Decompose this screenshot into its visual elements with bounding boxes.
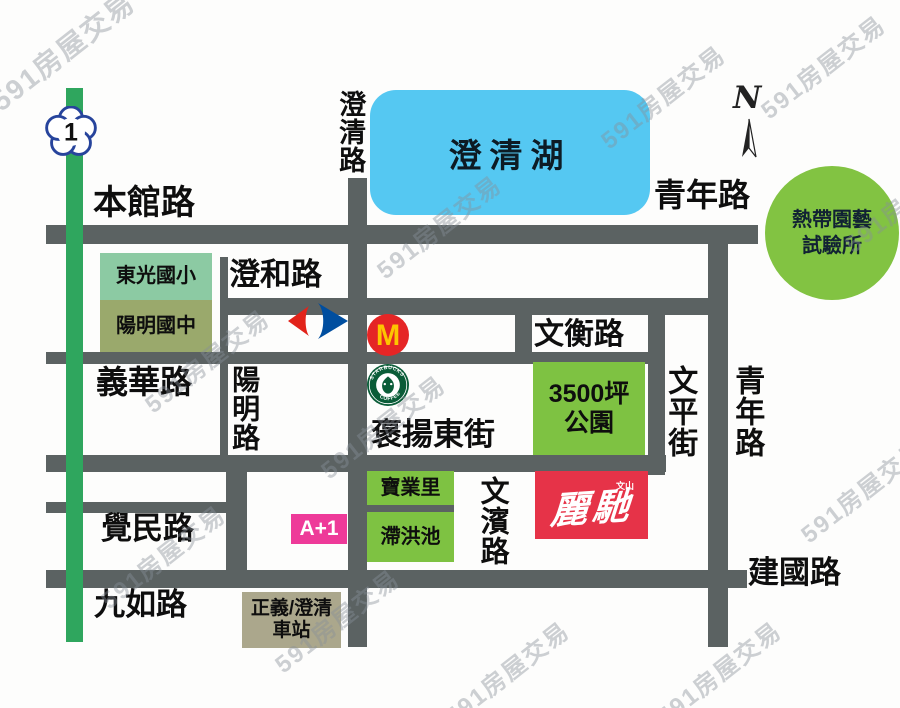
compass-north-icon: [741, 116, 757, 166]
mcdonalds-m: M: [376, 320, 400, 352]
a-plus-1-box: A+1: [291, 514, 347, 544]
property-brand-label: 麗馳: [549, 484, 635, 532]
lake-label: 澄清湖: [449, 129, 572, 177]
watermark: 591房屋交易: [436, 612, 576, 708]
location-map: 1 澄清湖 N 熱帶園藝 試驗所 東光國小 陽明國中 3500坪 公園 寶業里 …: [0, 0, 900, 708]
road-label-wenbin: 文濱路: [477, 476, 507, 566]
road-benguan-qingnian: [46, 225, 758, 244]
watermark: 591房屋交易: [752, 6, 892, 126]
road-label-jiuru: 九如路: [94, 589, 187, 621]
lake-chengqing: 澄清湖: [370, 90, 650, 215]
road-label-wenheng: 文衡路: [534, 319, 624, 350]
park-line2: 公園: [564, 409, 614, 438]
road-jianguo-jiuru: [46, 570, 747, 588]
park-3500-box: 3500坪 公園: [533, 362, 645, 455]
highway-1-badge-icon: 1: [44, 106, 98, 158]
compass-north-label: N: [733, 80, 761, 116]
road-label-chenghe: 澄和路: [229, 259, 322, 291]
yangming-junior-high-box: 陽明國中: [100, 300, 212, 352]
road-yangming-vertical-lower: [226, 455, 247, 588]
a-plus-1-label: A+1: [299, 517, 338, 541]
carrefour-logo-icon: [287, 302, 349, 340]
baoyeli-label: 寶業里: [381, 477, 441, 500]
road-mid-connector: [515, 298, 532, 364]
dongguang-elementary-box: 東光國小: [100, 253, 212, 300]
watermark: 591房屋交易: [792, 430, 900, 550]
detention-pond-label: 滯洪池: [381, 526, 441, 549]
road-chengqing-vertical: [348, 178, 367, 647]
zhengyi-chengqing-station-box: 正義/澄清 車站: [242, 592, 341, 648]
road-label-benguan: 本館路: [93, 186, 195, 221]
station-line2: 車站: [272, 620, 310, 642]
baoyeli-box: 寶業里: [367, 471, 454, 505]
starbucks-logo-icon: STARBUCKS COFFEE: [367, 364, 409, 406]
station-line1: 正義/澄清: [251, 598, 332, 620]
highway-1-number: 1: [64, 119, 78, 147]
road-label-yihua: 義華路: [96, 366, 192, 399]
dongguang-label: 東光國小: [116, 265, 196, 288]
road-label-wenping: 文平街: [664, 365, 695, 458]
tropical-horticulture-station: 熱帶園藝 試驗所: [765, 166, 899, 300]
mcdonalds-logo-icon: M: [367, 314, 409, 356]
road-label-chengqing: 澄清路: [336, 90, 364, 174]
tropical-line2: 試驗所: [802, 233, 862, 259]
park-line1: 3500坪: [549, 380, 630, 409]
road-qingnian-vertical: [708, 225, 728, 647]
road-label-qingnian-right: 青年路: [731, 365, 762, 458]
property-lichi-box: 文山 麗馳: [535, 471, 648, 539]
baoyeli-pond-divider: [367, 505, 454, 512]
road-label-baoyang: 褒揚東街: [371, 419, 495, 451]
road-label-jianguo: 建國路: [748, 557, 841, 589]
detention-pond-box: 滯洪池: [367, 512, 454, 562]
road-yangming-vertical-upper: [220, 257, 228, 455]
tropical-line1: 熱帶園藝: [792, 207, 872, 233]
road-label-qingnian-top: 青年路: [654, 179, 750, 212]
road-label-yangming: 陽明路: [230, 365, 259, 452]
road-label-juemin: 覺民路: [101, 513, 194, 545]
yangming-jh-label: 陽明國中: [116, 315, 196, 338]
highway-1-line: [66, 88, 83, 642]
